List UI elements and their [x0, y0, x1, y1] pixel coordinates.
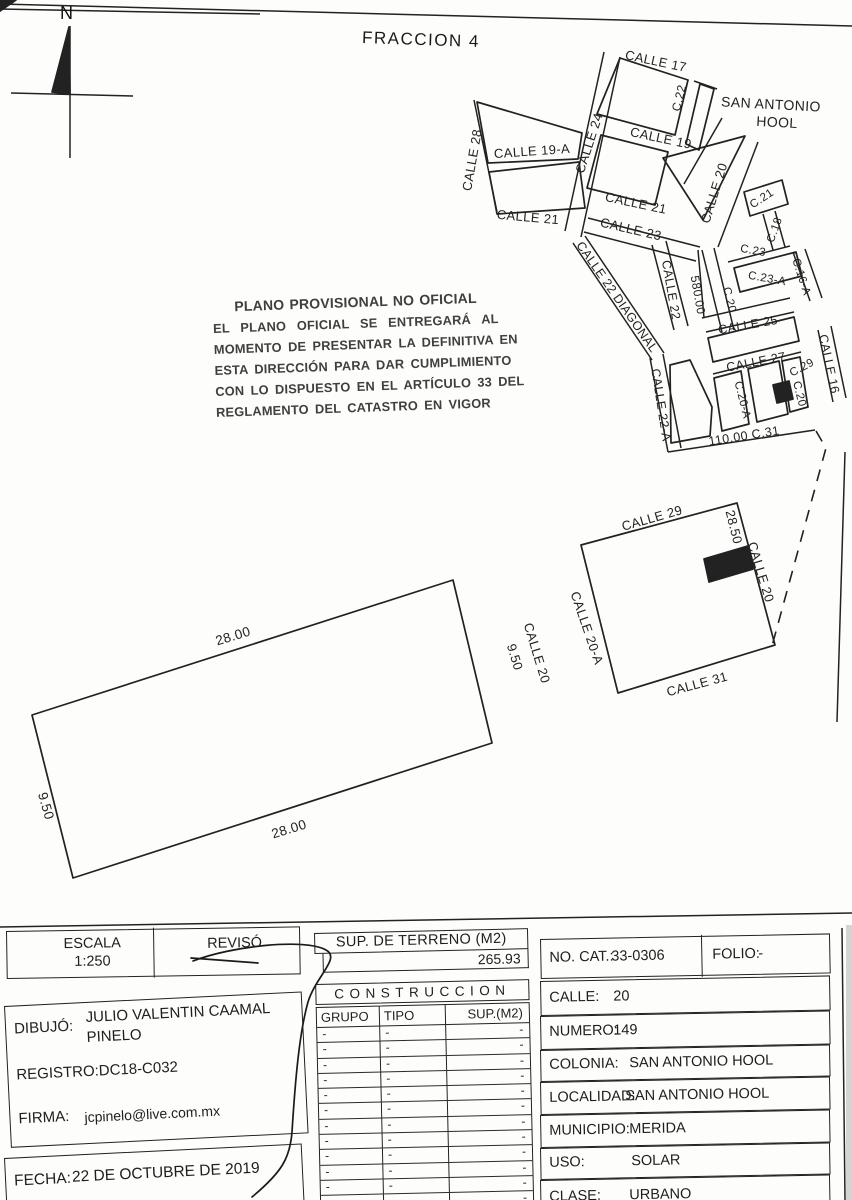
- registro-text: REGISTRO:DC18-C032: [16, 1059, 178, 1084]
- info-label: COLONIA:: [549, 1055, 619, 1072]
- construccion-cell: -: [382, 1101, 448, 1117]
- construccion-cell: -: [318, 1042, 381, 1058]
- info-row: CALLE:20: [540, 975, 831, 1016]
- construccion-cell: -: [446, 1038, 529, 1054]
- info-row: MUNICIPIO:MERIDA: [540, 1109, 831, 1148]
- info-label: USO:: [549, 1154, 585, 1171]
- plan-line: [0, 4, 852, 26]
- construccion-cell: -: [320, 1134, 383, 1150]
- info-value: SOLAR: [631, 1152, 680, 1169]
- construccion-cell: -: [319, 1118, 382, 1134]
- info-label: MUNICIPIO:: [549, 1121, 630, 1139]
- construccion-cell: -: [319, 1103, 382, 1119]
- construccion-col-header: TIPO: [380, 1005, 446, 1025]
- construccion-cell: -: [321, 1179, 384, 1195]
- info-value: 149: [613, 1022, 638, 1038]
- plan-line: [842, 928, 845, 1200]
- construccion-cell: -: [320, 1149, 383, 1165]
- construccion-title: CONSTRUCCION: [315, 979, 529, 1005]
- construccion-cell: -: [320, 1164, 383, 1180]
- map-label: HOOL: [756, 113, 798, 131]
- construccion-cell: -: [384, 1178, 450, 1194]
- dibujo-name-2: PINELO: [86, 1026, 142, 1046]
- info-row: NUMERO:149: [540, 1010, 831, 1050]
- info-value: URBANO: [629, 1186, 691, 1200]
- plan-line: [718, 142, 758, 247]
- construccion-cell: -: [380, 1040, 446, 1056]
- construccion-cell: -: [383, 1132, 449, 1148]
- block-outline: [581, 503, 775, 693]
- construccion-col-header: GRUPO: [317, 1007, 380, 1027]
- construccion-cell: -: [381, 1056, 447, 1072]
- info-row: NO. CAT.:33-0306FOLIO:-: [540, 933, 831, 979]
- construccion-cell: -: [448, 1115, 531, 1131]
- plan-line: [694, 81, 717, 89]
- provisional-stamp: PLANO PROVISIONAL NO OFICIALEL PLANO OFI…: [212, 287, 508, 423]
- construccion-cell: -: [448, 1084, 531, 1100]
- sup-terreno-value: 265.93: [322, 949, 528, 973]
- construccion-cell: -: [450, 1191, 533, 1200]
- construccion-body: ------------------------------------: [317, 1023, 533, 1200]
- dibujo-name: JULIO VALENTIN CAAMAL: [85, 1000, 270, 1026]
- info-value: 33-0306: [611, 948, 665, 965]
- dibujo-box: DIBUJÓ: JULIO VALENTIN CAAMAL PINELO REG…: [4, 991, 309, 1147]
- north-label: N: [60, 3, 73, 24]
- info-value: 20: [613, 988, 629, 1004]
- cadastral-plan-page: N FRACCION 4 PLANO PROVISIONAL NO OFICIA…: [0, 0, 852, 1200]
- info-label: CLASE:: [549, 1188, 601, 1200]
- parcel-marker: [704, 546, 753, 582]
- info-label: NO. CAT.:: [549, 949, 613, 966]
- construccion-cell: -: [381, 1071, 447, 1087]
- surface-and-construction: SUP. DE TERRENO (M2) 265.93 CONSTRUCCION…: [314, 928, 534, 1200]
- info-label: FOLIO:: [712, 946, 760, 963]
- info-value: -: [758, 946, 763, 962]
- construccion-cell: -: [449, 1161, 532, 1177]
- construccion-cell: -: [449, 1145, 532, 1161]
- construccion-cell: -: [321, 1195, 384, 1200]
- info-value: SAN ANTONIO HOOL: [629, 1053, 773, 1072]
- construccion-cell: -: [449, 1130, 532, 1146]
- construccion-cell: -: [318, 1057, 381, 1073]
- block-outline: [32, 580, 492, 878]
- construccion-cell: -: [383, 1163, 449, 1179]
- page-title: FRACCION 4: [362, 28, 481, 52]
- construccion-table: GRUPOTIPOSUP.(M2) ----------------------…: [316, 1002, 535, 1200]
- firma-label: FIRMA:: [18, 1108, 70, 1127]
- construccion-cell: -: [318, 1072, 381, 1088]
- reviso-label: REVISÓ: [207, 935, 262, 952]
- parcel-marker: [52, 27, 70, 94]
- info-label: NUMERO:: [549, 1023, 618, 1040]
- detail-leader-dashed: [772, 431, 826, 646]
- plan-line: [702, 250, 722, 332]
- info-row: LOCALIDAD:SAN ANTONIO HOOL: [540, 1076, 831, 1115]
- fecha-value: 22 DE OCTUBRE DE 2019: [72, 1160, 260, 1187]
- info-label: CALLE:: [549, 988, 599, 1005]
- construccion-cell: -: [448, 1100, 531, 1116]
- construccion-cell: -: [382, 1086, 448, 1102]
- escala-label: ESCALA: [37, 935, 147, 953]
- construccion-cell: -: [450, 1176, 533, 1192]
- escala-box: ESCALA 1:250 REVISÓ: [6, 926, 301, 979]
- firma-value: jcpinelo@live.com.mx: [84, 1103, 220, 1126]
- construccion-cell: -: [383, 1147, 449, 1163]
- info-value: MERIDA: [629, 1120, 686, 1137]
- plan-line: [11, 93, 133, 96]
- construccion-cell: -: [446, 1023, 529, 1039]
- construccion-cell: -: [384, 1193, 450, 1200]
- dibujo-label: DIBUJÓ:: [14, 1018, 74, 1038]
- construccion-cell: -: [319, 1088, 382, 1104]
- folio-cell: FOLIO:-: [701, 935, 703, 977]
- plan-line: [837, 452, 845, 722]
- construccion-cell: -: [447, 1069, 530, 1085]
- block-outline: [670, 360, 712, 443]
- construccion-cell: -: [382, 1117, 448, 1133]
- construccion-cell: -: [447, 1054, 530, 1070]
- info-label: LOCALIDAD:: [549, 1088, 636, 1106]
- plan-line: [0, 913, 852, 927]
- fecha-label: FECHA:: [14, 1170, 72, 1191]
- divider: [153, 928, 155, 978]
- construccion-col-header: SUP.(M2): [446, 1003, 529, 1024]
- escala-value: 1:250: [37, 953, 147, 971]
- construccion-cell: -: [380, 1025, 446, 1041]
- scan-edge-shadow: [846, 925, 852, 1200]
- info-value: SAN ANTONIO HOOL: [625, 1085, 769, 1104]
- construccion-cell: -: [317, 1027, 380, 1043]
- info-row: CLASE:URBANO: [540, 1174, 831, 1200]
